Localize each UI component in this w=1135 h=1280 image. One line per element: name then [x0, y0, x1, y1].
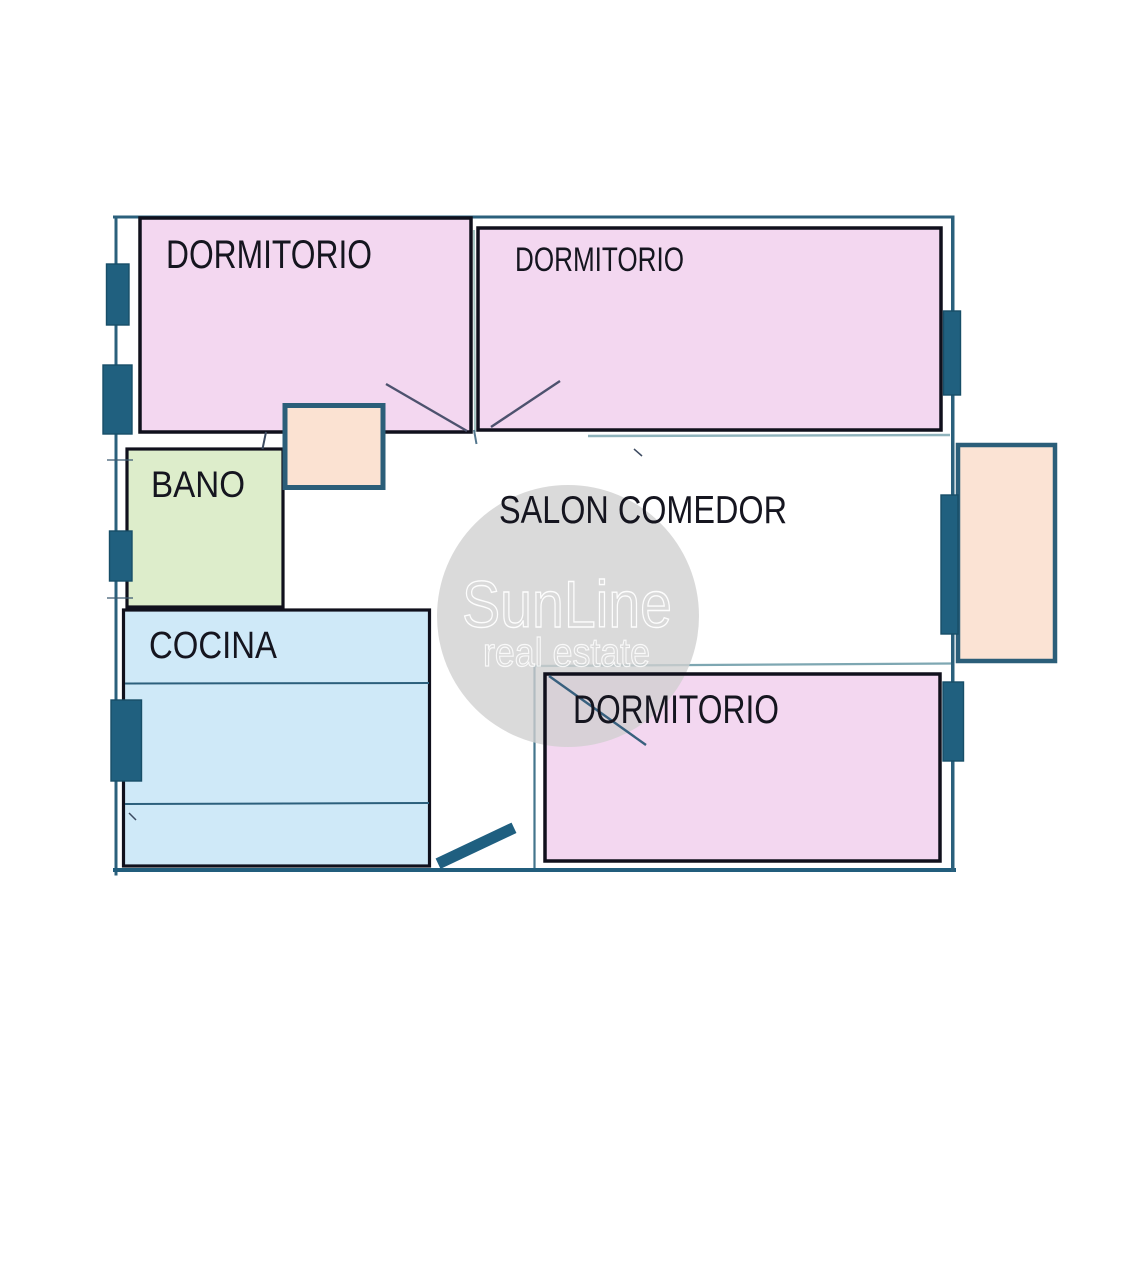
svg-text:SunLine: SunLine: [462, 567, 672, 641]
svg-text:DORMITORIO: DORMITORIO: [166, 233, 372, 277]
svg-text:BANO: BANO: [151, 464, 245, 505]
svg-text:DORMITORIO: DORMITORIO: [573, 688, 779, 732]
svg-text:real estate: real estate: [483, 631, 650, 675]
svg-text:DORMITORIO: DORMITORIO: [515, 241, 684, 279]
svg-text:SALON COMEDOR: SALON COMEDOR: [499, 489, 787, 532]
svg-text:COCINA: COCINA: [149, 625, 278, 667]
